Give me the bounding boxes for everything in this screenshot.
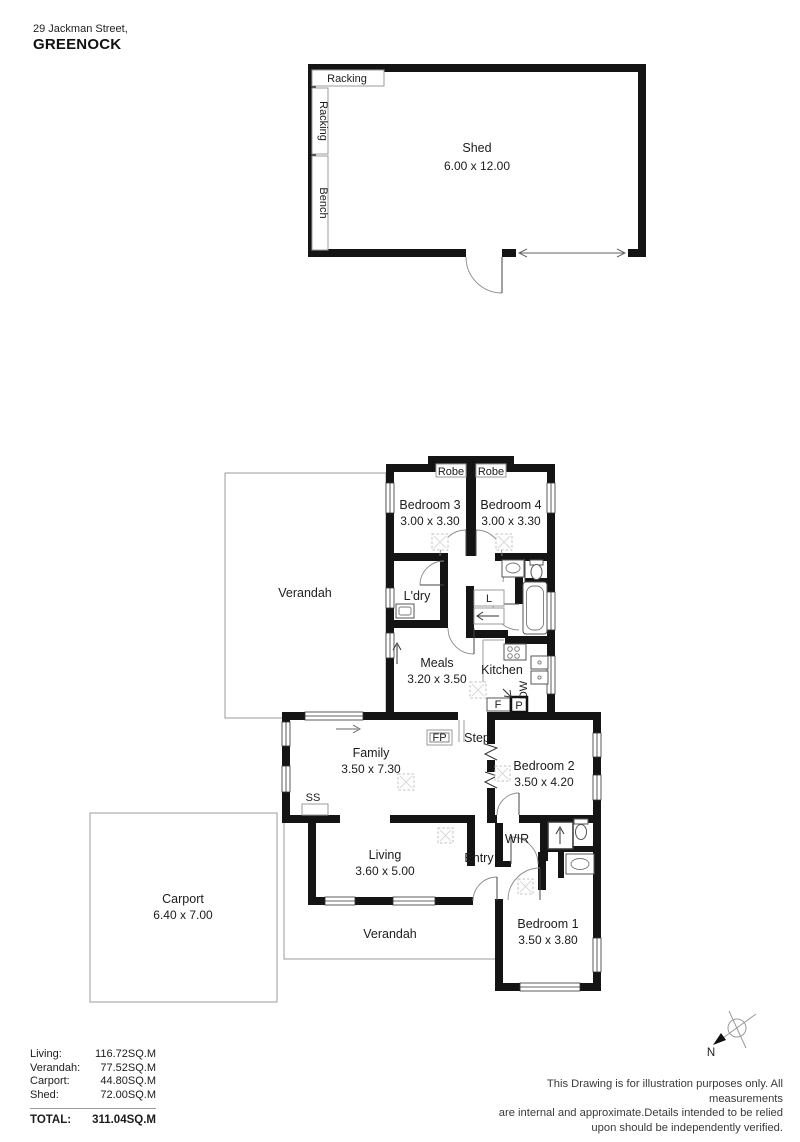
bedroom4-name: Bedroom 4 (480, 498, 541, 512)
floorplan-drawing: Racking Racking Bench Shed 6.00 x 12.00 (0, 0, 800, 1142)
area-table-divider (30, 1108, 156, 1109)
area-label: Carport: (30, 1075, 70, 1089)
shed-labels: Racking Racking Bench Shed 6.00 x 12.00 (317, 73, 510, 219)
area-value: 44.80SQ.M (100, 1075, 156, 1089)
family-wall-arrow (336, 725, 360, 733)
dishwasher-label: DW (518, 680, 530, 699)
disclaimer-text: This Drawing is for illustration purpose… (483, 1077, 783, 1135)
living-name: Living (369, 848, 402, 862)
bedroom3-name: Bedroom 3 (399, 498, 460, 512)
disclaimer-line2: are internal and approximate.Details int… (483, 1106, 783, 1121)
ss-label: SS (306, 792, 321, 804)
area-value: 72.00SQ.M (100, 1089, 156, 1103)
area-row-carport: Carport: 44.80SQ.M (30, 1075, 156, 1089)
ensuite-basin (566, 854, 594, 874)
area-summary-table: Living: 116.72SQ.M Verandah: 77.52SQ.M C… (30, 1048, 156, 1126)
shed-bench-label: Bench (317, 187, 329, 218)
disclaimer-line3: upon should be independently verified. (483, 1121, 783, 1136)
area-row-total: TOTAL: 311.04SQ.M (30, 1114, 156, 1126)
total-label: TOTAL: (30, 1114, 71, 1126)
carport-name: Carport (162, 892, 204, 906)
bedroom1-name: Bedroom 1 (517, 917, 578, 931)
shed-dims: 6.00 x 12.00 (444, 159, 510, 173)
compass-north-label: N (707, 1047, 715, 1059)
ensuite-toilet (574, 819, 588, 840)
compass: N (707, 1011, 756, 1059)
room-labels: Robe Robe Bedroom 3 3.00 x 3.30 Bedroom … (153, 466, 578, 947)
ss-box (302, 804, 328, 815)
wc-toilet (530, 560, 543, 580)
family-dims: 3.50 x 7.30 (341, 762, 401, 776)
area-row-verandah: Verandah: 77.52SQ.M (30, 1062, 156, 1076)
wc-basin (502, 560, 524, 577)
pantry-label: P (515, 700, 522, 712)
bathtub (523, 582, 547, 634)
stove (504, 644, 526, 660)
area-label: Verandah: (30, 1062, 80, 1076)
bedroom2-dims: 3.50 x 4.20 (514, 775, 574, 789)
shed-racking-side-label: Racking (317, 101, 329, 141)
entry-label: Entry (464, 851, 494, 865)
shed-fixtures (312, 70, 625, 293)
meals-name: Meals (420, 656, 453, 670)
area-label: Living: (30, 1048, 62, 1062)
family-name: Family (353, 746, 391, 760)
disclaimer-line1: This Drawing is for illustration purpose… (483, 1077, 783, 1106)
fireplace-label: FP (432, 732, 446, 744)
laundry-label: L'dry (404, 589, 431, 603)
living-dims: 3.60 x 5.00 (355, 864, 415, 878)
carport-dims: 6.40 x 7.00 (153, 908, 213, 922)
bedroom2-name: Bedroom 2 (513, 759, 574, 773)
robe-right-label: Robe (478, 466, 504, 478)
kitchen-label: Kitchen (481, 663, 523, 677)
laundry-sink (396, 604, 414, 618)
shower (548, 822, 573, 849)
shed-name: Shed (462, 141, 491, 155)
kitchen-sink (531, 656, 548, 684)
linen-label: L (486, 593, 492, 605)
compass-north-arrow-icon (713, 1033, 726, 1045)
verandah-top-label: Verandah (278, 586, 332, 600)
meals-dims: 3.20 x 3.50 (407, 672, 467, 686)
robe-left-label: Robe (438, 466, 464, 478)
wir-label: WIR (505, 832, 529, 846)
floorplan-page: 29 Jackman Street, GREENOCK Racking Rack… (0, 0, 800, 1142)
shed-racking-top-label: Racking (327, 73, 367, 85)
bedroom1-dims: 3.50 x 3.80 (518, 933, 578, 947)
area-value: 77.52SQ.M (100, 1062, 156, 1076)
fridge-label: F (495, 699, 502, 711)
bedroom4-dims: 3.00 x 3.30 (481, 514, 541, 528)
bedroom3-dims: 3.00 x 3.30 (400, 514, 460, 528)
step-label: Step (464, 731, 490, 745)
area-row-living: Living: 116.72SQ.M (30, 1048, 156, 1062)
area-value: 116.72SQ.M (95, 1048, 156, 1062)
area-label: Shed: (30, 1089, 59, 1103)
total-value: 311.04SQ.M (92, 1114, 156, 1126)
verandah-bottom-label: Verandah (363, 927, 417, 941)
pantry-arrow-icon (503, 689, 511, 697)
area-row-shed: Shed: 72.00SQ.M (30, 1089, 156, 1103)
